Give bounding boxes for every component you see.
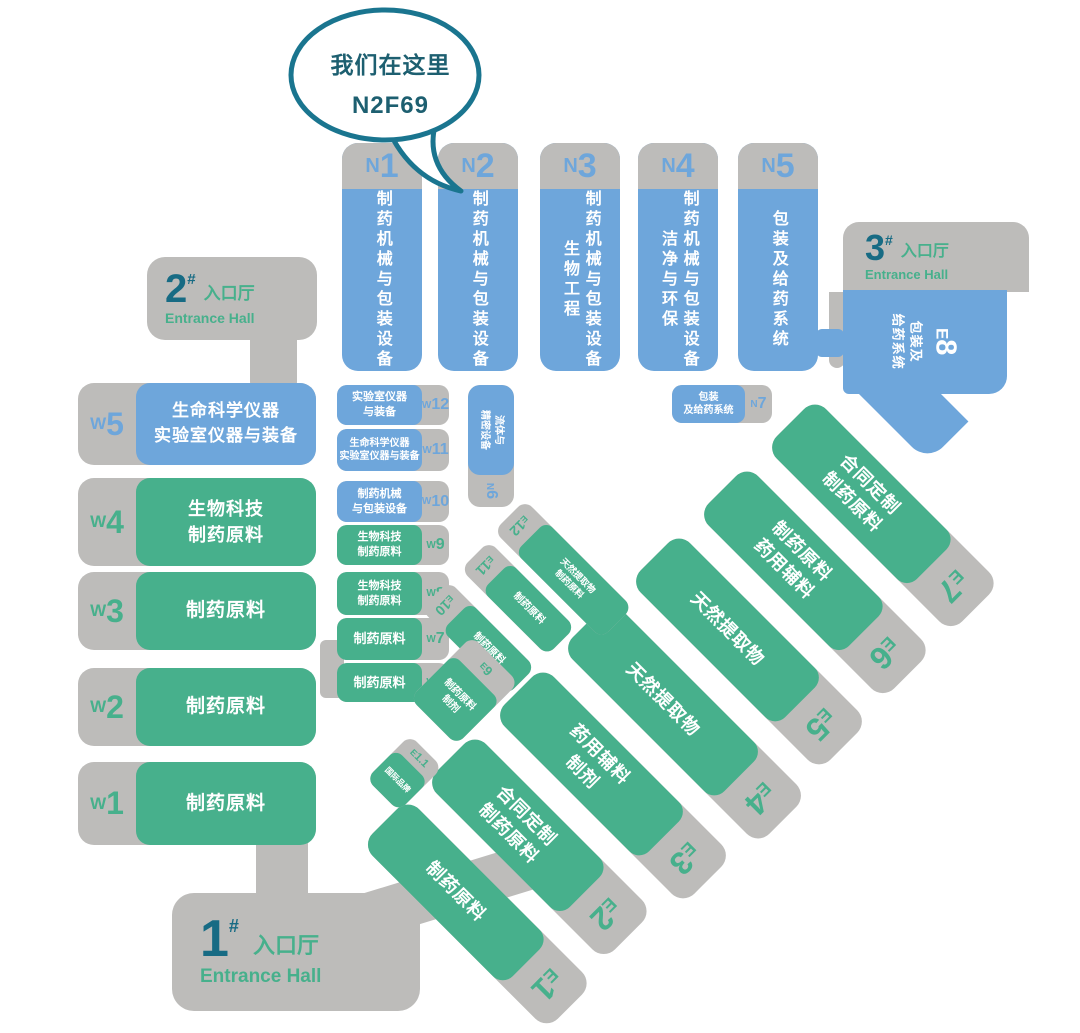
hall-w6-category: 制药原料 — [337, 663, 422, 702]
hall-w2-label: W2 — [78, 668, 136, 746]
hall-n7: 包装及给药系统 N7 — [672, 385, 772, 423]
hall-n3-number: 3 — [578, 147, 597, 186]
hall-n7-label: N7 — [745, 385, 772, 423]
entrance-hall-1: 1#入口厅 Entrance Hall — [172, 893, 420, 1011]
hall-n4-number: 4 — [676, 147, 695, 186]
hall-w7: 制药原料 W7 — [337, 618, 449, 660]
hall-w3-category: 制药原料 — [136, 572, 316, 650]
current-location-callout: 我们在这里 N2F69 — [303, 46, 478, 120]
callout-text: 我们在这里 — [303, 46, 478, 80]
hall-w12: 实验室仪器与装备 W12 — [337, 385, 449, 425]
entrance-1-hash: # — [229, 916, 239, 937]
hall-n4: N4 制药机械与包装设备洁净与环保 — [638, 143, 718, 371]
hall-n5-category: 包装及给药系统 — [767, 210, 789, 350]
hall-n6-label: N6 — [468, 475, 514, 507]
hall-n1-category: 制药机械与包装设备 — [371, 190, 393, 370]
hall-n4-category: 制药机械与包装设备洁净与环保 — [656, 190, 699, 370]
hall-w1: W1 制药原料 — [78, 762, 316, 845]
hall-w9: 生物科技制药原料 W9 — [337, 525, 449, 565]
entrance-1-number: 1 — [200, 916, 229, 963]
entrance-1-cn: 入口厅 — [253, 928, 319, 963]
hall-n4-label: N4 — [638, 143, 718, 189]
hall-w11-category: 生命科学仪器实验室仪器与装备 — [337, 429, 422, 471]
entrance-3-hash: # — [885, 232, 893, 248]
hall-w9-category: 生物科技制药原料 — [337, 525, 422, 565]
hall-w10-label: W10 — [422, 481, 449, 522]
hall-w9-label: W9 — [422, 525, 449, 565]
hall-n5-label: N5 — [738, 143, 818, 189]
hall-w5-label: W5 — [78, 383, 136, 465]
hall-w3-label: W3 — [78, 572, 136, 650]
hall-n6-category: 流体与精密设备 — [477, 410, 505, 450]
hall-n2-category: 制药机械与包装设备 — [467, 190, 489, 370]
entrance-3-en: Entrance Hall — [865, 267, 1029, 282]
hall-e1-1: E1.1 国际品牌 — [366, 735, 442, 811]
hall-w11-label: W11 — [422, 429, 449, 471]
entrance-2-en: Entrance Hall — [165, 310, 317, 326]
hall-n5-number: 5 — [776, 147, 795, 186]
hall-n4-prefix: N — [661, 155, 675, 178]
hall-w4-category: 生物科技制药原料 — [136, 478, 316, 566]
hall-n7-category: 包装及给药系统 — [672, 385, 745, 423]
hall-e8: E8 包装及给药系统 — [843, 290, 1007, 394]
hall-w4-label: W4 — [78, 478, 136, 566]
entrance-1-en: Entrance Hall — [200, 966, 420, 988]
callout-booth-number: N2F69 — [303, 92, 478, 120]
entrance-hall-2: 2#入口厅 Entrance Hall — [147, 257, 317, 340]
hall-n3-prefix: N — [563, 155, 577, 178]
entrance-2-hash: # — [187, 271, 195, 288]
hall-w4: W4 生物科技制药原料 — [78, 478, 316, 566]
entrance-3-number: 3 — [865, 232, 885, 264]
hall-w11: 生命科学仪器实验室仪器与装备 W11 — [337, 429, 449, 471]
hall-w2: W2 制药原料 — [78, 668, 316, 746]
hall-w12-category: 实验室仪器与装备 — [337, 385, 422, 425]
entrance-hall-3: 3#入口厅 Entrance Hall — [843, 222, 1029, 292]
hall-w1-category: 制药原料 — [136, 762, 316, 845]
entrance-3-cn: 入口厅 — [901, 237, 949, 264]
hall-w10: 制药机械与包装设备 W10 — [337, 481, 449, 522]
entrance-2-cn: 入口厅 — [204, 279, 255, 307]
hall-n3-category: 制药机械与包装设备生物工程 — [558, 190, 601, 370]
hall-w5: W5 生命科学仪器实验室仪器与装备 — [78, 383, 316, 465]
hall-w1-label: W1 — [78, 762, 136, 845]
hall-e8-category: 包装及给药系统 — [888, 314, 924, 370]
hall-w12-label: W12 — [422, 385, 449, 425]
corridor-entrance1-w1 — [256, 843, 308, 899]
hall-w3: W3 制药原料 — [78, 572, 316, 650]
hall-n5-prefix: N — [761, 155, 775, 178]
hall-w10-category: 制药机械与包装设备 — [337, 481, 422, 522]
hall-n3-label: N3 — [540, 143, 620, 189]
n5-east-stub — [816, 329, 844, 357]
entrance-2-number: 2 — [165, 271, 187, 307]
hall-n5: N5 包装及给药系统 — [738, 143, 818, 371]
hall-w2-category: 制药原料 — [136, 668, 316, 746]
hall-w7-category: 制药原料 — [337, 618, 422, 660]
hall-w5-category: 生命科学仪器实验室仪器与装备 — [136, 383, 316, 465]
hall-w8-category: 生物科技制药原料 — [337, 572, 422, 615]
hall-n6: 流体与精密设备 N6 — [468, 385, 514, 507]
hall-n3: N3 制药机械与包装设备生物工程 — [540, 143, 620, 371]
hall-e8-label: E8 — [929, 328, 962, 355]
expo-floor-map: N1 制药机械与包装设备 N2 制药机械与包装设备 N3 制药机械与包装设备生物… — [0, 0, 1080, 1033]
